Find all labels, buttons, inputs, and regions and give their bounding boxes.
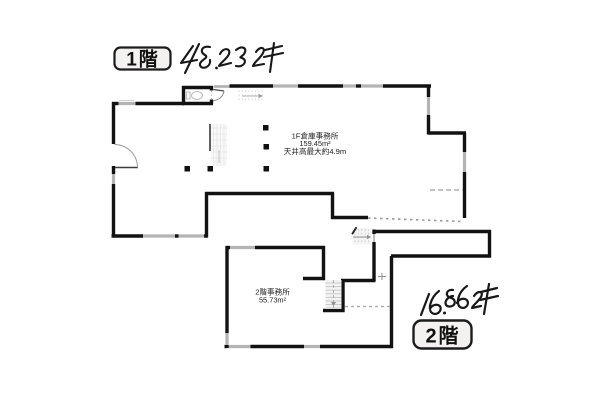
svg-text:1階: 1階 [126, 49, 160, 71]
svg-text:2階: 2階 [425, 325, 460, 348]
svg-text:55.73m²: 55.73m² [259, 296, 287, 305]
svg-text:天井高最大約4.9m: 天井高最大約4.9m [284, 146, 346, 156]
